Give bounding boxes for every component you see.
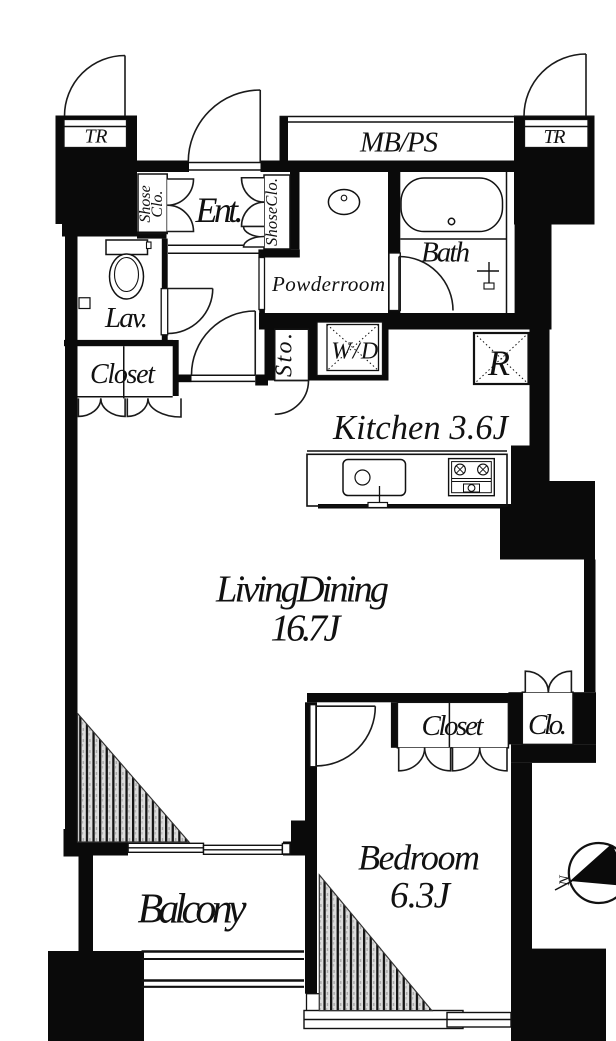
svg-text:N: N <box>557 875 573 887</box>
svg-text:Lav.: Lav. <box>104 302 148 334</box>
svg-text:Clo.: Clo. <box>149 190 166 217</box>
svg-text:Closet: Closet <box>90 359 156 390</box>
svg-text:6.3J: 6.3J <box>390 876 452 917</box>
svg-text:LivingDining: LivingDining <box>215 569 389 611</box>
svg-text:Kitchen 3.6J: Kitchen 3.6J <box>332 409 510 447</box>
svg-text:Ent.: Ent. <box>195 190 244 230</box>
svg-text:16.7J: 16.7J <box>271 608 343 650</box>
svg-text:Bath: Bath <box>421 237 470 269</box>
svg-text:ShoseClo.: ShoseClo. <box>262 178 281 246</box>
svg-text:Powderroom: Powderroom <box>271 272 385 296</box>
svg-text:W/D: W/D <box>331 339 378 365</box>
svg-text:MB/PS: MB/PS <box>359 127 439 159</box>
svg-text:Closet: Closet <box>422 710 485 742</box>
svg-text:TR: TR <box>85 126 108 148</box>
svg-text:Clo.: Clo. <box>528 709 567 741</box>
svg-text:R: R <box>487 343 510 383</box>
svg-text:Balcony: Balcony <box>138 887 247 933</box>
svg-text:Bedroom: Bedroom <box>358 838 480 878</box>
svg-text:TR: TR <box>544 126 566 148</box>
